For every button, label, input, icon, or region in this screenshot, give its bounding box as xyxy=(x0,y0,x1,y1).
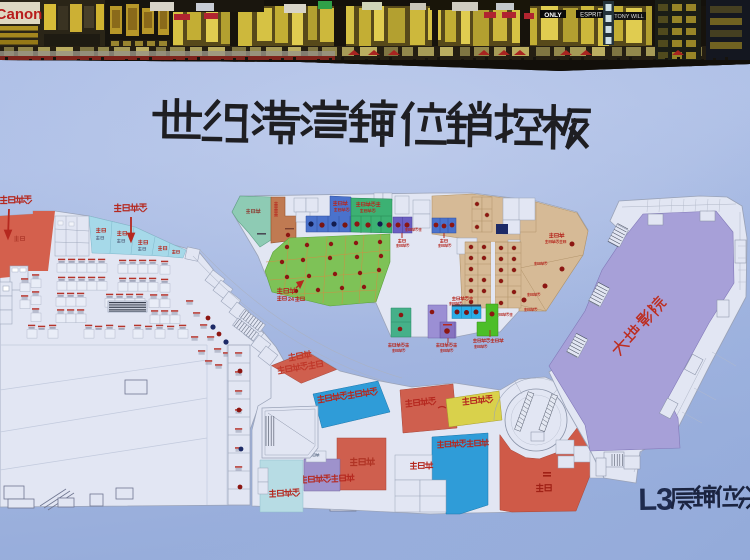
svg-text:ESPRIT: ESPRIT xyxy=(580,13,602,19)
svg-text:24: 24 xyxy=(288,297,294,303)
svg-text:ONLY: ONLY xyxy=(544,12,562,19)
svg-text:TONY WILL: TONY WILL xyxy=(614,14,643,20)
svg-text:Canon: Canon xyxy=(0,6,42,23)
svg-text:L3: L3 xyxy=(638,482,673,517)
